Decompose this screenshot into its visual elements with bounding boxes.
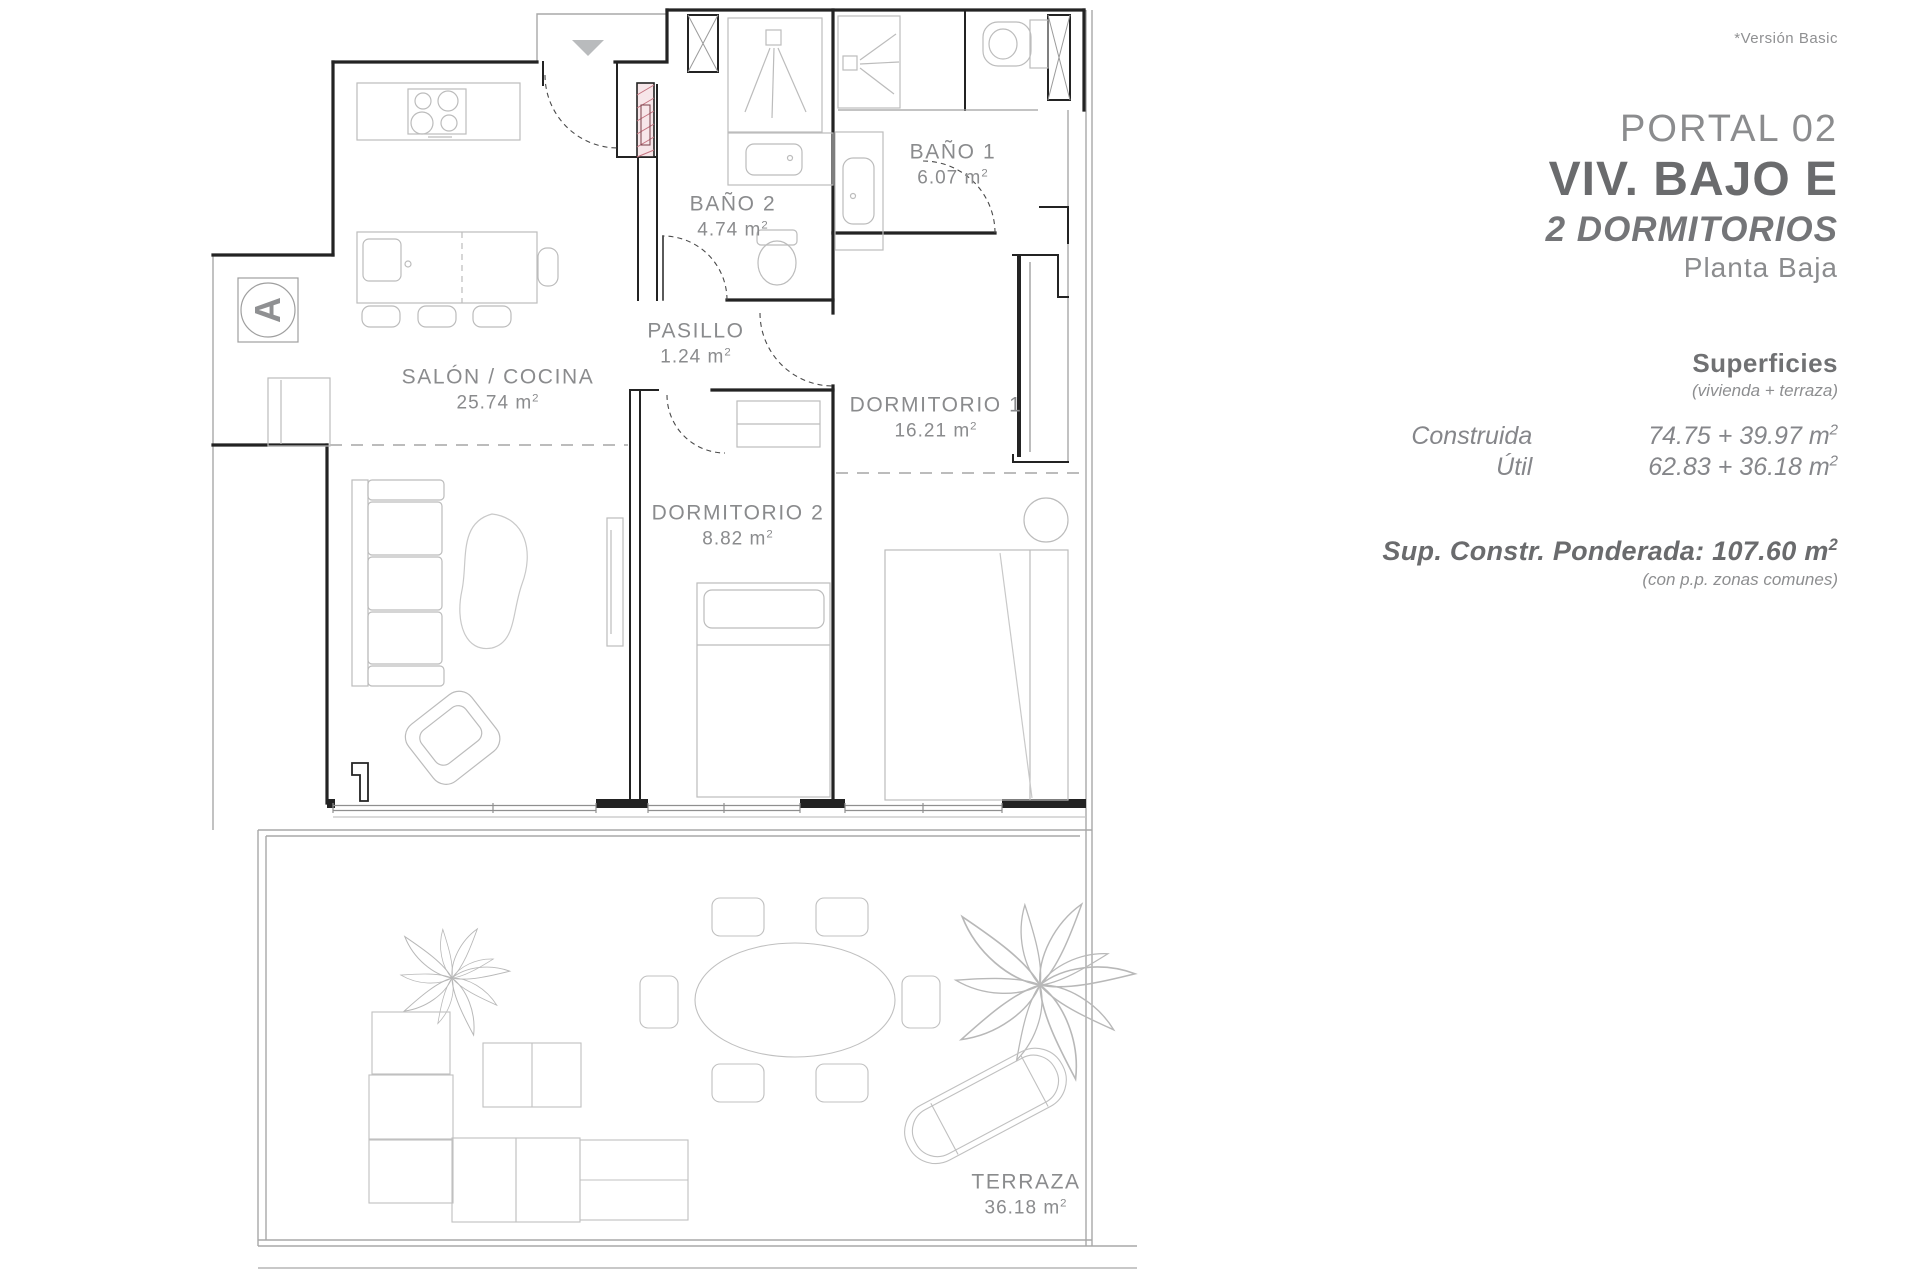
room-label-dormitorio-2: DORMITORIO 2 8.82 m2: [652, 501, 825, 550]
bed-icon: [885, 550, 1068, 800]
room-area: 16.21 m2: [850, 420, 1023, 442]
installation-shaft-hatched: [637, 83, 654, 157]
room-label-pasillo: PASILLO 1.24 m2: [647, 319, 744, 368]
section-marker: A: [238, 278, 298, 342]
surface-row-label: Construida: [1292, 422, 1532, 451]
dining-table-icon: [640, 898, 940, 1102]
surfaces-subtitle: (vivienda + terraza): [1692, 381, 1838, 401]
bed-icon: [697, 583, 830, 797]
sink-icon: [363, 239, 401, 281]
surface-row-value: 74.75 + 39.97 m2: [1648, 422, 1838, 450]
room-label-salon-cocina: SALÓN / COCINA 25.74 m2: [402, 365, 595, 414]
room-label-bano-2: BAÑO 2 4.74 m2: [690, 192, 777, 241]
washbasin-icon: [728, 133, 833, 185]
room-name: DORMITORIO 2: [652, 501, 825, 525]
coffee-table-icon: [483, 1043, 581, 1107]
shower-icon: [838, 16, 900, 108]
section-marker-letter: A: [247, 297, 288, 323]
sofa-icon: [352, 480, 444, 686]
surface-row-value: 62.83 + 36.18 m2: [1648, 453, 1838, 481]
vent-shaft-icon: [688, 15, 1070, 100]
room-label-terraza: TERRAZA 36.18 m2: [971, 1170, 1080, 1219]
room-label-dormitorio-1: DORMITORIO 1 16.21 m2: [850, 393, 1023, 442]
zone-dashed-lines: [330, 445, 1084, 473]
stool-icon: [473, 306, 511, 327]
room-area: 36.18 m2: [971, 1197, 1080, 1219]
shower-icon: [728, 18, 822, 132]
salon-furniture: [352, 480, 623, 791]
entrance-arrow-icon: [572, 40, 604, 56]
room-area: 1.24 m2: [647, 346, 744, 368]
bath2-fixtures: [728, 18, 833, 285]
floorplan-page: A: [0, 0, 1920, 1280]
palm-plant-icon: [955, 900, 1135, 1082]
rug-icon: [460, 514, 527, 649]
room-area: 6.07 m2: [910, 167, 997, 189]
unit-title: VIV. BAJO E: [1549, 152, 1838, 207]
room-name: BAÑO 1: [910, 140, 997, 164]
version-note: *Versión Basic: [1734, 30, 1838, 47]
room-area: 4.74 m2: [690, 219, 777, 241]
room-area: 25.74 m2: [402, 392, 595, 414]
room-name: SALÓN / COCINA: [402, 365, 595, 389]
sun-lounger-icon: [894, 1038, 1077, 1174]
weighted-surface-note: (con p.p. zonas comunes): [1642, 570, 1838, 590]
armchair-icon: [399, 685, 506, 791]
room-name: PASILLO: [647, 319, 744, 343]
room-area: 8.82 m2: [652, 528, 825, 550]
chair-icon: [538, 248, 558, 286]
outdoor-sofa-icon: [369, 1075, 688, 1222]
surface-row-util: Útil 62.83 + 36.18 m2: [1648, 453, 1838, 482]
portal-title: PORTAL 02: [1620, 108, 1838, 151]
stool-icon: [362, 306, 400, 327]
stove-icon: [408, 89, 466, 137]
toilet-icon: [983, 20, 1048, 68]
surface-row-construida: Construida 74.75 + 39.97 m2: [1648, 422, 1838, 451]
surfaces-title: Superficies: [1692, 348, 1838, 379]
info-panel: *Versión Basic PORTAL 02 VIV. BAJO E 2 D…: [1356, 0, 1838, 640]
bedrooms-subtitle: 2 DORMITORIOS: [1546, 210, 1838, 250]
vent-shaft-x-lines: [688, 15, 1070, 100]
bath1-fixtures: [835, 16, 1048, 250]
surface-row-label: Útil: [1292, 453, 1532, 482]
bedroom1-furniture: [885, 498, 1068, 800]
side-table-icon: [1024, 498, 1068, 542]
stool-icon: [418, 306, 456, 327]
sideboard-icon: [607, 518, 623, 646]
floor-subtitle: Planta Baja: [1684, 252, 1838, 284]
bedroom2-furniture: [697, 401, 830, 797]
plant-icon: [400, 927, 510, 1037]
room-label-bano-1: BAÑO 1 6.07 m2: [910, 140, 997, 189]
weighted-surface-line: Sup. Constr. Ponderada: 107.60 m2: [1382, 536, 1838, 567]
room-name: TERRAZA: [971, 1170, 1080, 1194]
room-name: DORMITORIO 1: [850, 393, 1023, 417]
room-name: BAÑO 2: [690, 192, 777, 216]
